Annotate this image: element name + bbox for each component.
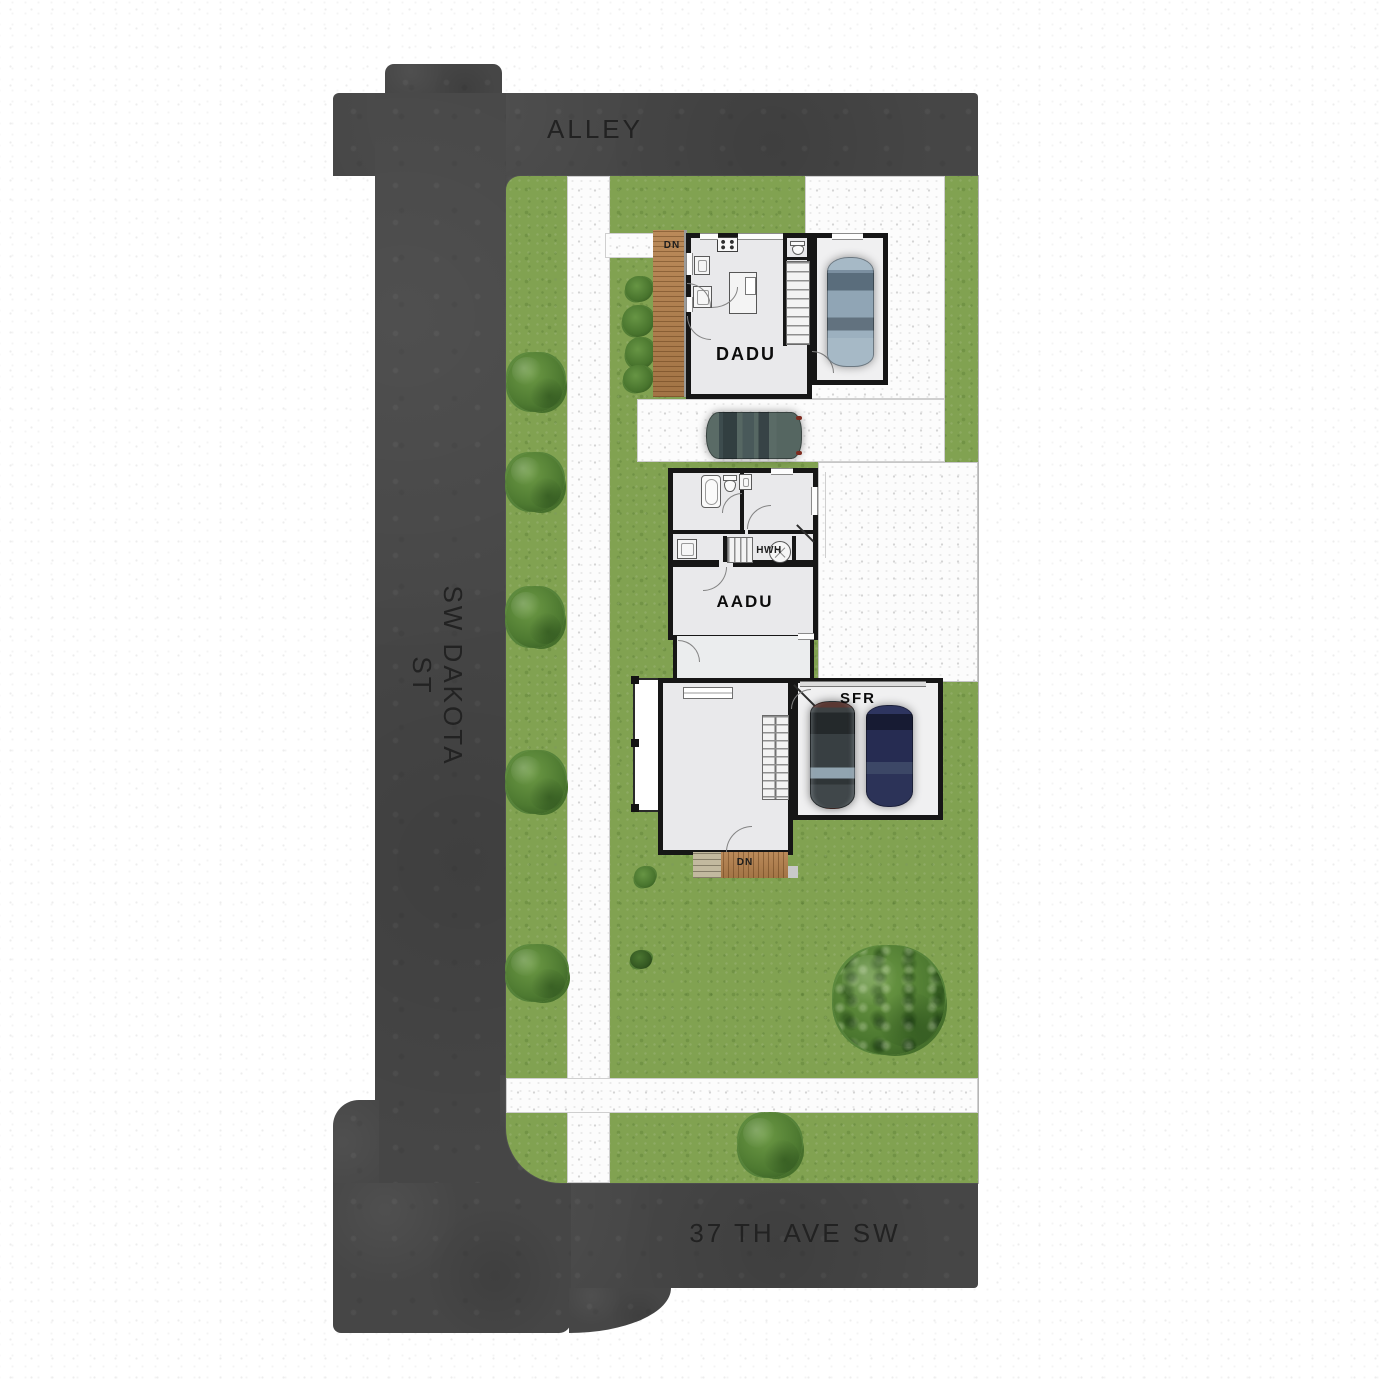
street-label-37th-ave: 37 TH AVE SW [655, 1218, 935, 1249]
bush [630, 950, 652, 969]
tail-light [796, 416, 802, 420]
patio [818, 462, 978, 682]
tree [506, 944, 568, 1002]
walkway-dadu-connector [605, 233, 657, 258]
bush [622, 305, 654, 337]
tree [506, 750, 566, 814]
toilet-icon [723, 475, 737, 492]
tail-light [796, 451, 802, 455]
sidewalk-south [506, 1078, 978, 1113]
water-heater-label: HWH [744, 545, 794, 556]
porch-post [631, 739, 639, 747]
street-label-sw-dakota: SW DAKOTA ST [406, 566, 468, 786]
street-label-alley: ALLEY [460, 114, 730, 145]
window [686, 253, 693, 275]
garage-door-sfr [800, 681, 926, 687]
bush [623, 365, 653, 393]
window [811, 487, 818, 515]
car-dadu-garage [827, 257, 874, 367]
wall [783, 257, 812, 260]
deck-sfr-dn-label: DN [715, 857, 775, 868]
window [798, 633, 814, 640]
lot: DN DADU [506, 176, 978, 1183]
label-sfr: SFR [828, 690, 888, 707]
tree [738, 1112, 802, 1178]
wall [673, 560, 719, 567]
wall [673, 530, 745, 534]
window [832, 233, 863, 240]
sink-icon [694, 256, 710, 275]
front-window-sfr [683, 687, 733, 699]
tree [507, 352, 565, 412]
bath-sink-icon [739, 474, 752, 490]
deck-step-pad [788, 866, 798, 878]
deck-dadu [653, 230, 687, 397]
road-curb-curve [569, 1288, 671, 1333]
road-intersection-bulge [333, 1183, 571, 1333]
window [738, 233, 783, 240]
porch-post [631, 804, 639, 812]
tree [506, 452, 564, 512]
site-plan: ALLEY SW DAKOTA ST 37 TH AVE SW DN [0, 0, 1385, 1385]
stove-icon [717, 237, 738, 252]
bush [625, 276, 653, 302]
large-tree [833, 945, 945, 1055]
suv-sfr-garage [810, 701, 855, 809]
window [771, 468, 793, 475]
stairs-sfr [762, 715, 789, 800]
label-dadu: DADU [696, 344, 796, 365]
toilet-icon [790, 241, 805, 255]
sedan-sfr-garage [866, 705, 913, 807]
washer-icon [677, 539, 697, 559]
stairs-dadu [786, 261, 810, 345]
patio-edge-line [825, 472, 826, 558]
car-driveway [706, 412, 802, 459]
walkway-vertical [567, 176, 610, 1183]
bathtub-icon [701, 475, 721, 508]
tree [506, 586, 564, 648]
label-aadu: AADU [695, 592, 795, 612]
porch-post [631, 676, 639, 684]
window [686, 297, 693, 312]
bush [634, 866, 656, 888]
window [700, 233, 718, 240]
